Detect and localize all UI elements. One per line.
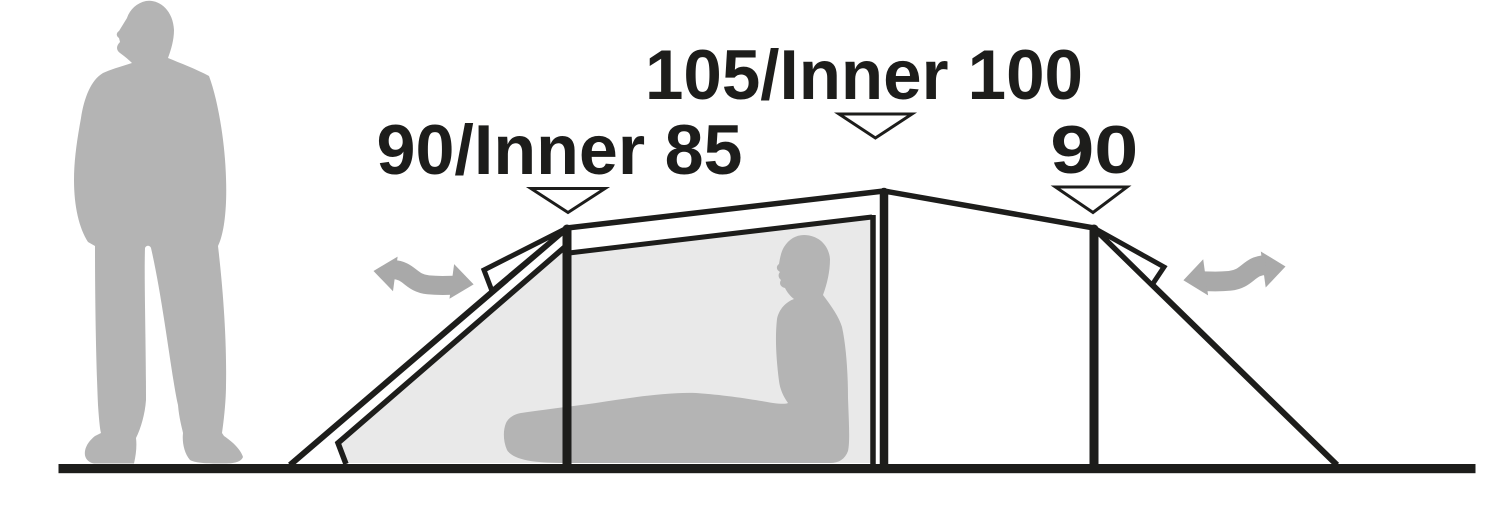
svg-text:105/Inner 100: 105/Inner 100: [645, 35, 1083, 114]
svg-text:90/Inner 85: 90/Inner 85: [377, 110, 743, 189]
svg-text:90: 90: [1050, 112, 1138, 188]
